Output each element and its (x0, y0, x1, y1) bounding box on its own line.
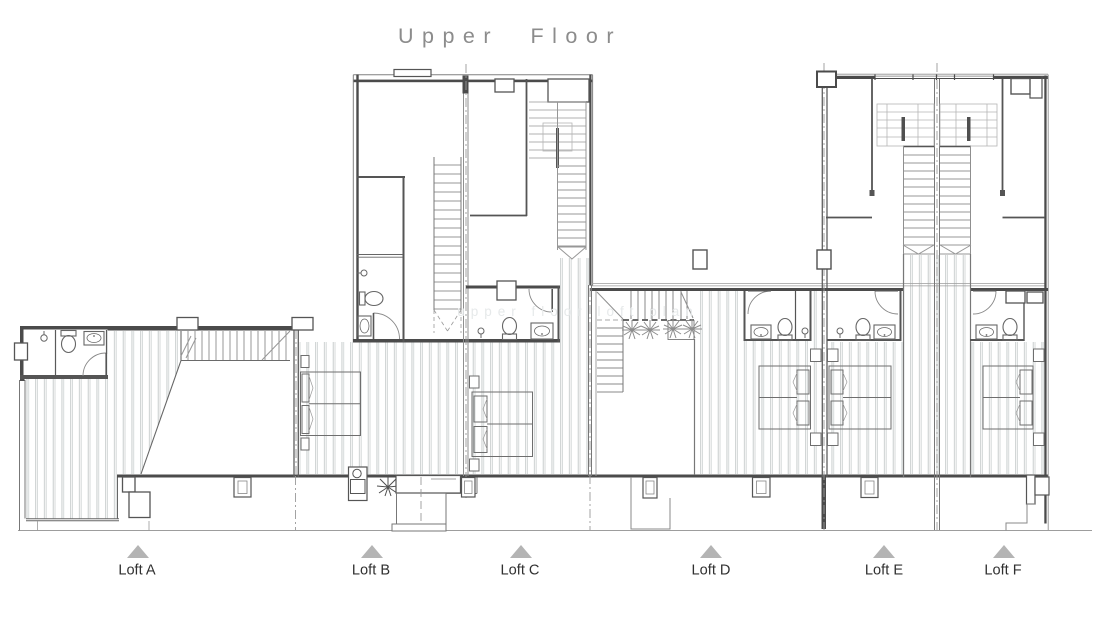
svg-text:Loft E: Loft E (865, 563, 903, 579)
svg-text:Loft A: Loft A (118, 563, 156, 579)
svg-text:Loft F: Loft F (984, 563, 1021, 579)
svg-text:Loft C: Loft C (501, 563, 540, 579)
svg-text:Upper Floor: Upper Floor (398, 24, 622, 48)
svg-text:upper floor loft plan: upper floor loft plan (457, 304, 699, 319)
svg-text:Loft B: Loft B (352, 563, 390, 579)
svg-text:Loft D: Loft D (692, 563, 731, 579)
